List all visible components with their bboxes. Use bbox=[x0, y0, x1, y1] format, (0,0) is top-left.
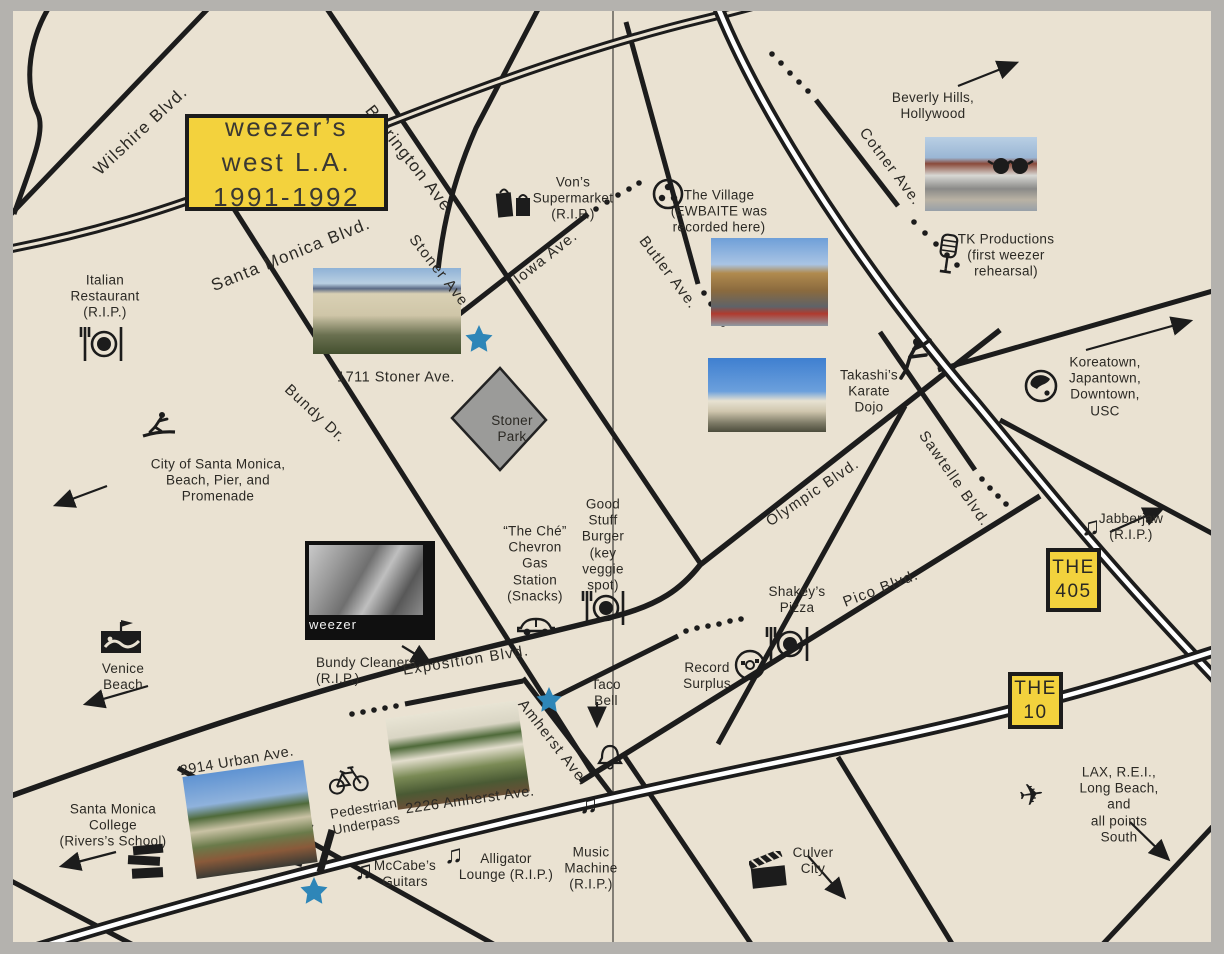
arrow-santa-monica-city bbox=[56, 486, 107, 505]
bell-icon bbox=[595, 744, 625, 772]
grocery-bags-icon bbox=[495, 185, 535, 219]
film-reel-icon bbox=[651, 177, 685, 211]
restaurant-plate-icon bbox=[79, 325, 125, 363]
karate-kick-icon bbox=[895, 337, 933, 381]
label-tk-productions: TK Productions (first weezer rehearsal) bbox=[958, 232, 1055, 281]
surfer-icon bbox=[141, 411, 177, 441]
arrow-smc bbox=[62, 852, 116, 866]
stoner-park-label: Stoner Park bbox=[491, 413, 533, 445]
photo-weezer-caption: weezer bbox=[309, 615, 431, 634]
label-good-stuff-burger: Good Stuff Burger (key veggie spot) bbox=[582, 496, 624, 593]
label-lax: LAX, R.E.I., Long Beach, and all points … bbox=[1073, 765, 1165, 846]
road-expo-row bbox=[405, 681, 523, 704]
label-jabberjaw: Jabberjaw (R.I.P.) bbox=[1099, 511, 1163, 543]
label-beverly-hills: Beverly Hills, Hollywood bbox=[892, 90, 974, 122]
map-page: weezer’s west L.A. 1991-1992 THE 405 THE… bbox=[0, 0, 1224, 954]
road-unnamed-mid bbox=[718, 406, 905, 744]
highway-shield-10: THE 10 bbox=[1008, 672, 1063, 729]
photo-weezer-band-image bbox=[309, 545, 423, 615]
photo-the-village-building bbox=[711, 238, 828, 326]
label-koreatown: Koreatown, Japantown, Downtown, USC bbox=[1069, 355, 1141, 420]
caption-1711-stoner: 1711 Stoner Ave. bbox=[337, 369, 455, 386]
road-south-2 bbox=[838, 757, 962, 942]
bicycle-icon bbox=[327, 763, 369, 795]
label-shakeys-pizza: Shakey’s Pizza bbox=[769, 584, 826, 616]
photo-2914-urban-house bbox=[182, 760, 317, 879]
clapperboard-icon bbox=[749, 851, 793, 893]
microphone-icon bbox=[937, 233, 961, 275]
music-note-icon: ♫ bbox=[1081, 513, 1101, 539]
label-vons-supermarket: Von’s Supermarket (R.I.P.) bbox=[533, 175, 614, 224]
map-canvas: weezer’s west L.A. 1991-1992 THE 405 THE… bbox=[13, 11, 1211, 942]
label-record-surplus: Record Surplus bbox=[683, 660, 731, 692]
sunglasses-icon bbox=[987, 154, 1035, 178]
music-note-icon: ♫ bbox=[354, 857, 374, 883]
label-city-of-santa-monica: City of Santa Monica, Beach, Pier, and P… bbox=[151, 457, 286, 506]
books-icon bbox=[125, 843, 167, 883]
label-takashi-dojo: Takashi’s Karate Dojo bbox=[840, 368, 898, 417]
airplane-icon: ✈ bbox=[1017, 779, 1046, 812]
music-note-icon: ♫ bbox=[579, 791, 599, 817]
label-che-chevron: “The Ché” Chevron Gas Station (Snacks) bbox=[503, 524, 566, 605]
label-bundy-cleaners: Bundy Cleaners (R.I.P.) bbox=[316, 655, 416, 687]
restaurant-plate-icon bbox=[765, 625, 811, 663]
star-marker-1711-stoner bbox=[465, 325, 493, 352]
restaurant-plate-icon bbox=[581, 589, 627, 627]
music-note-icon: ♫ bbox=[444, 841, 464, 867]
label-venice-beach: Venice Beach bbox=[102, 661, 144, 693]
label-alligator-lounge: Alligator Lounge (R.I.P.) bbox=[459, 851, 553, 883]
map-title: weezer’s west L.A. 1991-1992 bbox=[185, 114, 388, 211]
cd-icon bbox=[733, 648, 767, 682]
label-taco-bell: Taco Bell bbox=[591, 677, 621, 709]
road-hook-curve bbox=[14, 11, 58, 214]
star-marker-2914-urban bbox=[300, 877, 328, 904]
photo-takashi-dojo-storefront bbox=[708, 358, 826, 432]
label-mccabes-guitars: McCabe’s Guitars bbox=[374, 858, 436, 890]
arrow-beverly bbox=[958, 63, 1016, 86]
star-marker-2226-amherst bbox=[536, 687, 562, 712]
label-culver-city: Culver City bbox=[793, 845, 834, 877]
boardwalk-icon bbox=[97, 617, 145, 659]
photo-weezer-band: weezer bbox=[305, 541, 435, 640]
label-italian-restaurant: Italian Restaurant (R.I.P.) bbox=[70, 273, 139, 322]
car-icon bbox=[517, 615, 555, 637]
label-the-village: The Village (EWBAITE was recorded here) bbox=[671, 188, 768, 237]
highway-shield-405: THE 405 bbox=[1046, 548, 1101, 612]
label-music-machine: Music Machine (R.I.P.) bbox=[564, 845, 617, 894]
globe-icon bbox=[1023, 368, 1059, 404]
